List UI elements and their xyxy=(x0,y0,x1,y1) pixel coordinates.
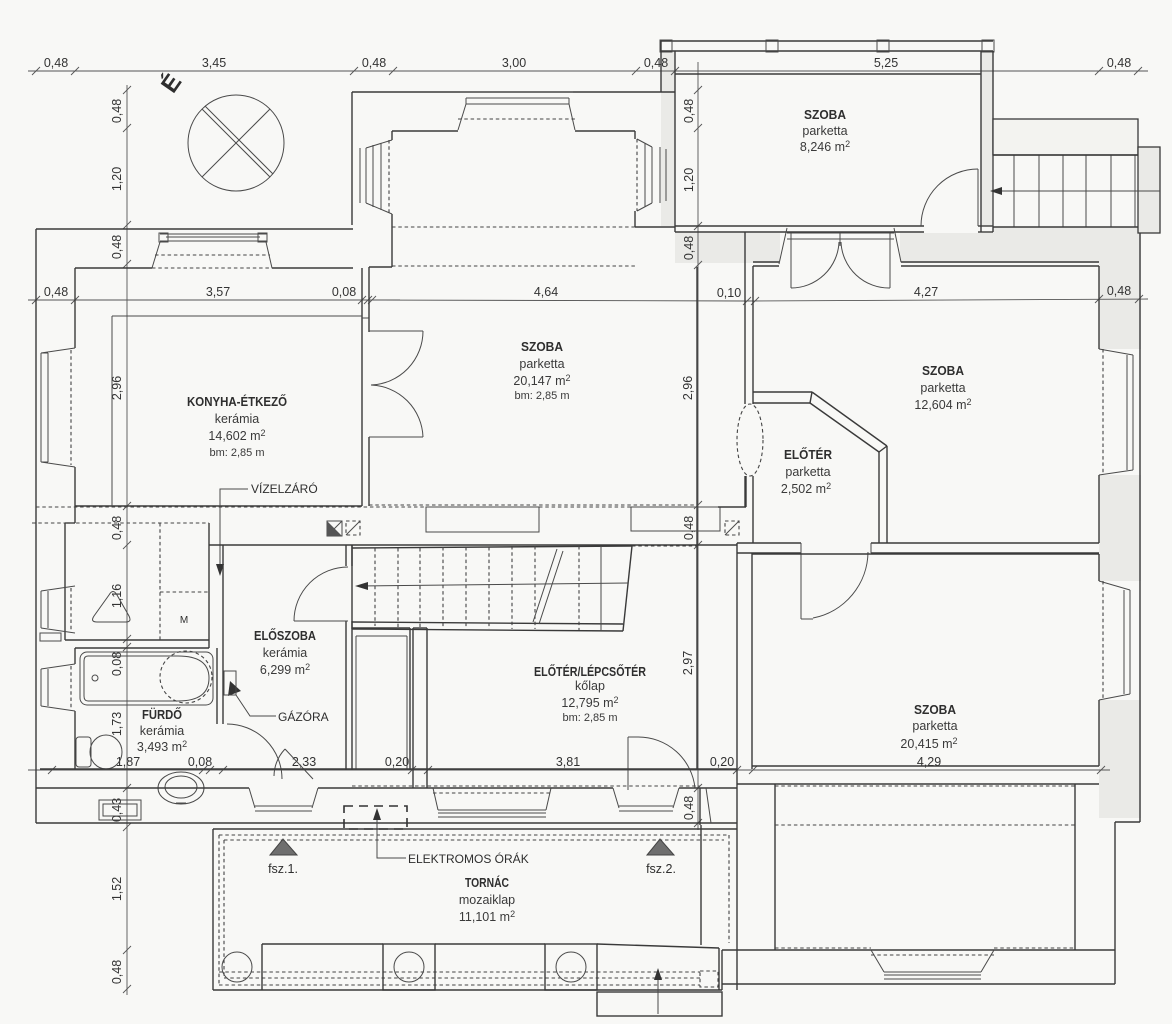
svg-text:0,20: 0,20 xyxy=(710,755,734,769)
svg-text:KONYHA-ÉTKEZŐ: KONYHA-ÉTKEZŐ xyxy=(187,394,287,409)
svg-text:0,48: 0,48 xyxy=(44,285,68,299)
svg-text:0,48: 0,48 xyxy=(682,236,696,260)
svg-text:2,502 m2: 2,502 m2 xyxy=(781,481,831,496)
svg-text:0,48: 0,48 xyxy=(644,56,668,70)
svg-text:1,52: 1,52 xyxy=(110,877,124,901)
svg-text:fsz.1.: fsz.1. xyxy=(268,862,298,876)
svg-text:0,48: 0,48 xyxy=(110,960,124,984)
svg-text:bm: 2,85 m: bm: 2,85 m xyxy=(562,712,617,724)
svg-text:parketta: parketta xyxy=(519,357,564,371)
svg-text:0,48: 0,48 xyxy=(110,516,124,540)
svg-text:parketta: parketta xyxy=(920,381,965,395)
svg-text:3,493 m2: 3,493 m2 xyxy=(137,739,187,754)
svg-text:6,299 m2: 6,299 m2 xyxy=(260,662,310,677)
svg-text:20,147 m2: 20,147 m2 xyxy=(513,373,570,388)
svg-text:0,08: 0,08 xyxy=(110,652,124,676)
svg-text:ELŐTÉR/LÉPCSŐTÉR: ELŐTÉR/LÉPCSŐTÉR xyxy=(534,664,646,679)
svg-text:1,20: 1,20 xyxy=(682,168,696,192)
svg-text:4,29: 4,29 xyxy=(917,755,941,769)
svg-text:bm: 2,85 m: bm: 2,85 m xyxy=(209,447,264,459)
svg-text:parketta: parketta xyxy=(802,124,847,138)
svg-text:0,20: 0,20 xyxy=(385,755,409,769)
svg-text:20,415 m2: 20,415 m2 xyxy=(900,736,957,751)
svg-text:2,96: 2,96 xyxy=(681,376,695,400)
svg-text:0,48: 0,48 xyxy=(682,99,696,123)
svg-text:kerámia: kerámia xyxy=(140,724,185,738)
svg-text:ELEKTROMOS ÓRÁK: ELEKTROMOS ÓRÁK xyxy=(408,851,529,866)
svg-text:2,97: 2,97 xyxy=(681,651,695,675)
svg-text:ELŐSZOBA: ELŐSZOBA xyxy=(254,628,317,643)
svg-text:bm: 2,85 m: bm: 2,85 m xyxy=(514,390,569,402)
svg-text:0,48: 0,48 xyxy=(362,56,386,70)
svg-text:0,48: 0,48 xyxy=(1107,56,1131,70)
svg-text:FÜRDŐ: FÜRDŐ xyxy=(142,707,182,722)
svg-text:SZOBA: SZOBA xyxy=(804,107,847,122)
svg-text:0,10: 0,10 xyxy=(717,286,741,300)
svg-text:SZOBA: SZOBA xyxy=(922,363,965,378)
svg-text:SZOBA: SZOBA xyxy=(521,339,564,354)
svg-text:kőlap: kőlap xyxy=(575,679,605,693)
svg-text:3,81: 3,81 xyxy=(556,755,580,769)
svg-text:4,64: 4,64 xyxy=(534,285,558,299)
svg-text:SZOBA: SZOBA xyxy=(914,702,957,717)
svg-text:0,48: 0,48 xyxy=(1107,284,1131,298)
svg-text:4,27: 4,27 xyxy=(914,285,938,299)
svg-text:0,48: 0,48 xyxy=(682,796,696,820)
svg-text:8,246 m2: 8,246 m2 xyxy=(800,139,850,154)
svg-text:kerámia: kerámia xyxy=(215,412,260,426)
svg-text:0,08: 0,08 xyxy=(188,755,212,769)
svg-text:0,48: 0,48 xyxy=(110,235,124,259)
svg-text:5,25: 5,25 xyxy=(874,56,898,70)
svg-text:0,48: 0,48 xyxy=(682,516,696,540)
svg-text:1,20: 1,20 xyxy=(110,167,124,191)
svg-text:GÁZÓRA: GÁZÓRA xyxy=(278,709,329,724)
svg-text:mozaiklap: mozaiklap xyxy=(459,893,515,907)
svg-text:3,45: 3,45 xyxy=(202,56,226,70)
svg-text:12,604 m2: 12,604 m2 xyxy=(914,397,971,412)
svg-text:kerámia: kerámia xyxy=(263,646,308,660)
svg-text:0,43: 0,43 xyxy=(110,798,124,822)
svg-text:TORNÁC: TORNÁC xyxy=(465,875,509,890)
svg-text:3,57: 3,57 xyxy=(206,285,230,299)
svg-text:M: M xyxy=(180,615,188,626)
svg-text:0,48: 0,48 xyxy=(44,56,68,70)
svg-text:3,00: 3,00 xyxy=(502,56,526,70)
svg-text:11,101 m2: 11,101 m2 xyxy=(459,909,515,924)
svg-text:1,73: 1,73 xyxy=(110,712,124,736)
svg-text:ELŐTÉR: ELŐTÉR xyxy=(784,447,833,462)
svg-text:VÍZELZÁRÓ: VÍZELZÁRÓ xyxy=(251,481,318,496)
svg-text:2,33: 2,33 xyxy=(292,755,316,769)
svg-text:0,48: 0,48 xyxy=(110,99,124,123)
svg-text:0,08: 0,08 xyxy=(332,285,356,299)
svg-text:14,602 m2: 14,602 m2 xyxy=(208,428,265,443)
svg-text:fsz.2.: fsz.2. xyxy=(646,862,676,876)
svg-text:parketta: parketta xyxy=(912,719,957,733)
svg-text:12,795 m2: 12,795 m2 xyxy=(561,695,618,710)
svg-text:parketta: parketta xyxy=(785,465,830,479)
